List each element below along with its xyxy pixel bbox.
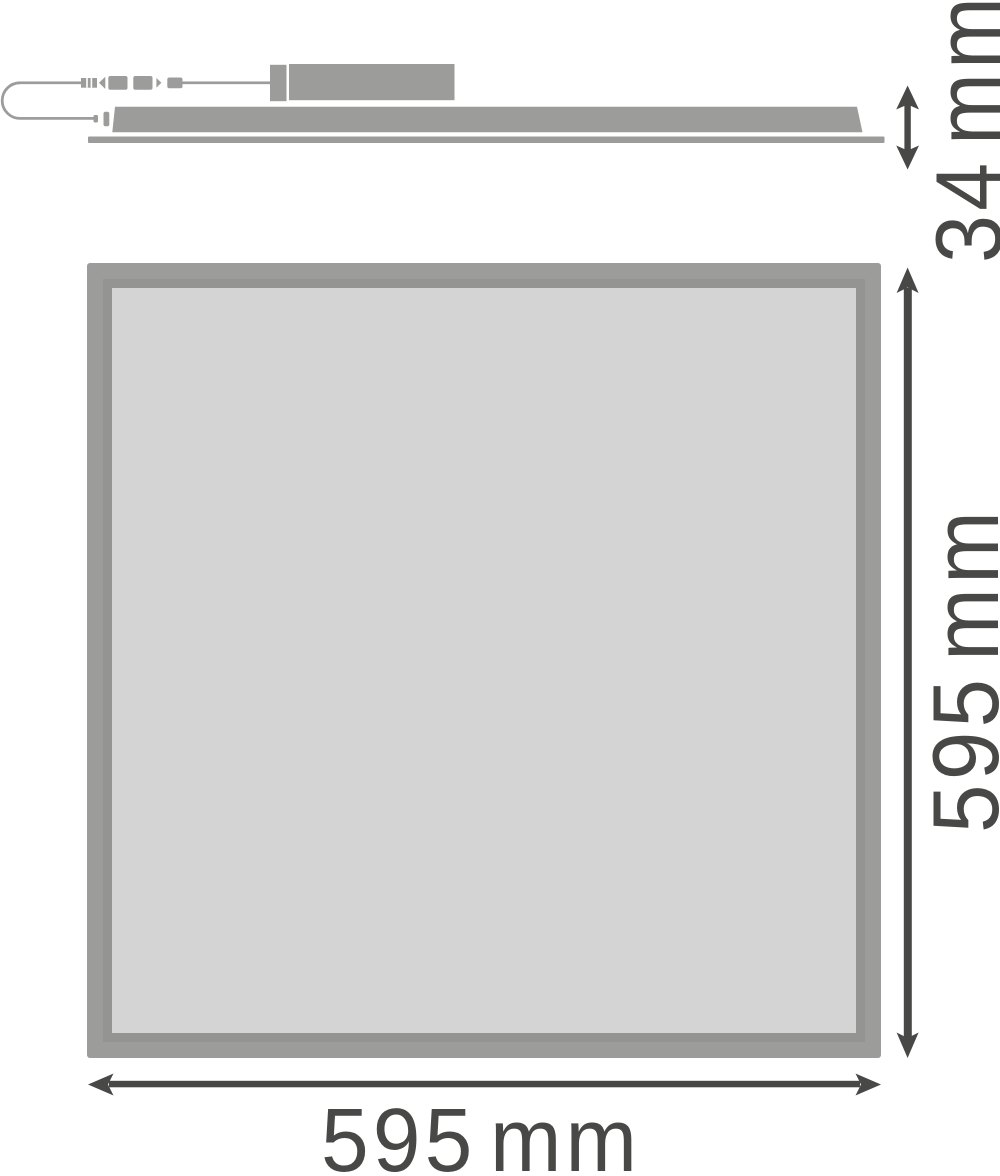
svg-text:595 mm: 595 mm (913, 507, 1000, 833)
svg-text:595 mm: 595 mm (321, 1090, 641, 1176)
svg-text:34 mm: 34 mm (916, 0, 1000, 263)
